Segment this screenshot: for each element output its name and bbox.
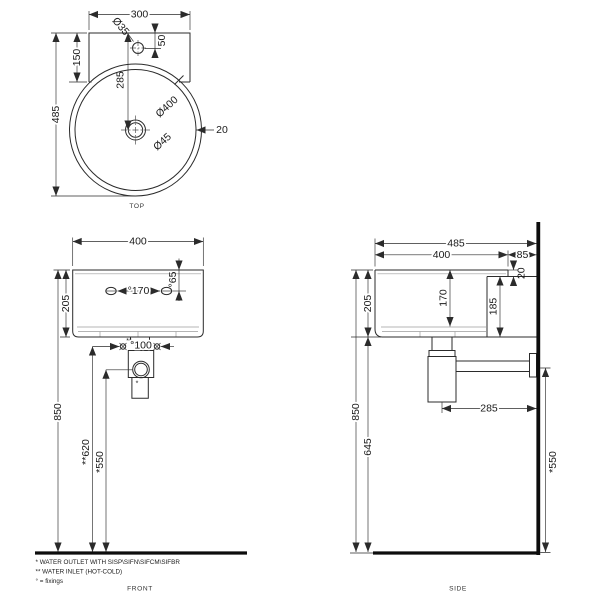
side-view-label: SIDE <box>449 586 467 593</box>
dim-fixing-offset: °65 <box>167 271 179 287</box>
top-view-dimensions: 300 485 150 50 285 Ø35 Ø400 Ø45 20 <box>50 9 228 197</box>
dim-inlet-span: °100 <box>130 340 152 352</box>
technical-drawing: 300 485 150 50 285 Ø35 Ø400 Ø45 20 TOP <box>0 0 600 600</box>
ledge-outline <box>89 33 190 82</box>
dim-basin-dia: Ø400 <box>153 94 180 120</box>
dim-top-ledge-depth: 150 <box>71 49 83 67</box>
dim-side-height: 205 <box>362 295 374 313</box>
dim-side-mount-height: 850 <box>350 403 362 421</box>
dim-clearance: 645 <box>362 438 374 456</box>
notes: * WATER OUTLET WITH SISP\SIFN\SIFCM\SIFB… <box>36 559 181 585</box>
dim-front-width: 400 <box>129 236 147 248</box>
dim-front-mount-height: 850 <box>52 403 64 421</box>
dim-wall-offset: 85 <box>517 249 529 261</box>
dim-inlet-height: **620 <box>80 439 92 465</box>
dim-top-width: 300 <box>131 9 149 21</box>
water-inlets: ** °100 <box>93 338 175 352</box>
wall-flange <box>530 354 537 378</box>
note-water-inlet: ** WATER INLET (HOT-COLD) <box>36 569 123 576</box>
front-view-dimensions: °170 °65 400 205 850 <box>52 236 203 553</box>
dim-trap-offset: 285 <box>480 403 498 415</box>
front-view-label: FRONT <box>127 586 153 593</box>
trap-side <box>428 337 537 402</box>
dim-fixing-span: °170 <box>128 285 150 297</box>
side-view-dimensions: 485 400 85 20 205 645 850 170 185 285 <box>350 238 559 554</box>
drawing-page: 300 485 150 50 285 Ø35 Ø400 Ø45 20 TOP <box>0 0 600 600</box>
dim-tap-offset: 50 <box>156 35 168 47</box>
dim-side-total-depth: 485 <box>447 238 465 250</box>
front-height-dimensions: **620 *550 <box>80 347 132 553</box>
outlet-mark: * <box>136 381 139 388</box>
dim-drain-setback: 285 <box>115 71 127 89</box>
dim-back-height: 185 <box>488 298 500 316</box>
front-view: °170 °65 400 205 850 * <box>35 236 247 593</box>
top-view-label: TOP <box>129 203 144 210</box>
dim-front-height: 205 <box>60 295 72 313</box>
note-fixings: ° = fixings <box>36 577 64 585</box>
dim-side-basin-depth: 400 <box>433 249 451 261</box>
dim-rim-thickness: 20 <box>216 124 228 136</box>
note-water-outlet: * WATER OUTLET WITH SISP\SIFN\SIFCM\SIFB… <box>36 559 181 566</box>
dim-side-outlet-height: *550 <box>547 451 559 473</box>
dim-bowl-depth: 170 <box>438 289 450 307</box>
dim-outlet-height: *550 <box>94 451 106 473</box>
dim-ledge-drop: 20 <box>516 267 528 279</box>
top-view: 300 485 150 50 285 Ø35 Ø400 Ø45 20 TOP <box>50 9 228 211</box>
side-view: 485 400 85 20 205 645 850 170 185 285 <box>350 222 559 593</box>
dim-top-total-depth: 485 <box>50 106 62 124</box>
dim-drain-dia: Ø45 <box>151 131 174 153</box>
